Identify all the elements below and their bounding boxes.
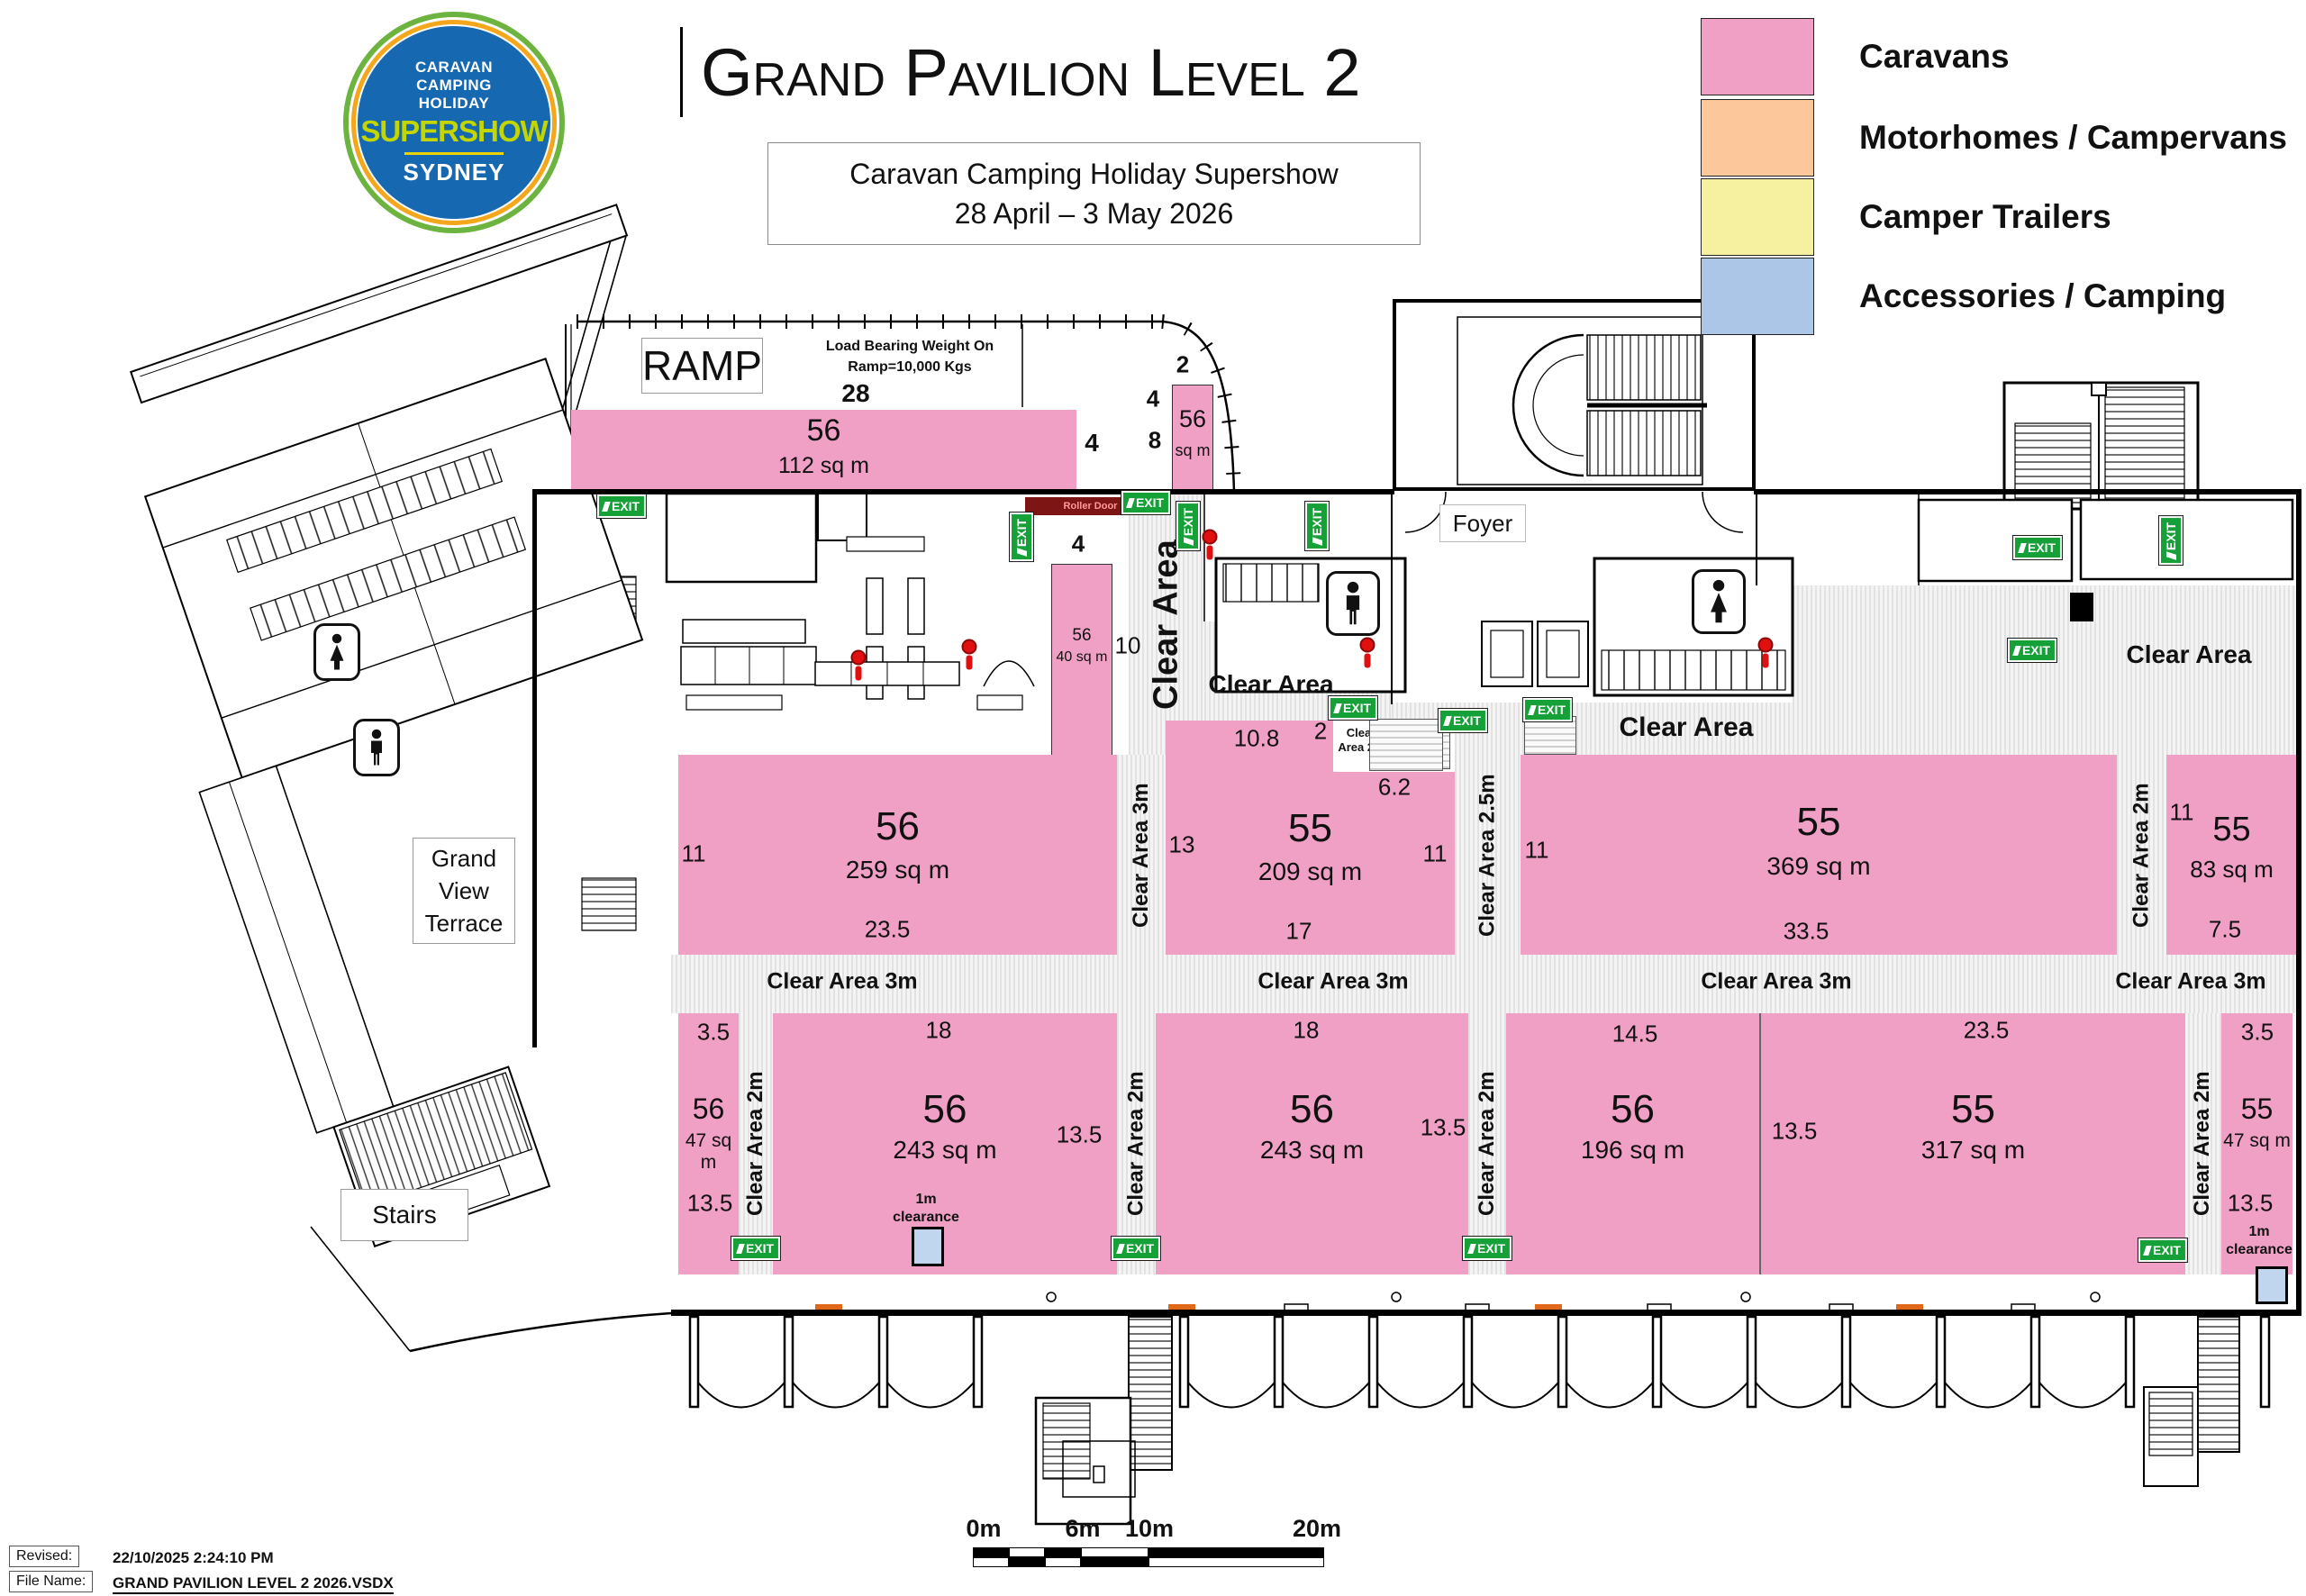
exit-sign: EXIT: [1176, 502, 1200, 550]
booth-area: 317 sq m: [1761, 1136, 2185, 1165]
wall-right: [2296, 489, 2301, 1316]
dim: 10.8: [1234, 725, 1280, 753]
legend-label-caravans: Caravans: [1859, 38, 2010, 76]
stairs-label: Stairs: [372, 1201, 437, 1229]
scale-cell: [1009, 1557, 1045, 1567]
clearance-square-right: [2256, 1266, 2288, 1304]
clear-area-3m-label-3: Clear Area 3m: [1701, 969, 1851, 995]
dim: 4: [1085, 429, 1099, 458]
exit-text: EXIT: [612, 499, 640, 513]
supershow-logo: CARAVAN CAMPING HOLIDAY SUPERSHOW SYDNEY: [343, 12, 565, 233]
dim: 13.5: [687, 1190, 733, 1218]
exit-sign: EXIT: [1329, 696, 1377, 720]
booth-56-243-b: 56 243 sq m: [1156, 1013, 1468, 1274]
dim: 13.5: [1421, 1114, 1466, 1142]
clear-area-label-3: Clear Area: [2126, 640, 2251, 669]
exit-sign: EXIT: [2013, 536, 2062, 559]
stairs-label-box: Stairs: [340, 1189, 468, 1241]
dim: 11: [1423, 840, 1448, 868]
clearance-1m: 1m: [2248, 1224, 2269, 1239]
exit-text: EXIT: [2022, 643, 2050, 657]
exit-sign: EXIT: [2008, 639, 2056, 662]
dim: 11: [2170, 799, 2194, 827]
top-right-rooms: [1919, 500, 2292, 621]
booth-56-corner: 56 sq m: [1172, 385, 1213, 494]
scale-cell: [1148, 1547, 1324, 1557]
clear-area-2m-text: Clear Area 2m: [2129, 784, 2155, 929]
dock-marker-4: [1896, 1304, 1923, 1310]
aisle-2m-mid-label: Clear Area 2m: [2117, 766, 2166, 946]
dim: 28: [841, 379, 869, 408]
legend-swatch-accessories: [1701, 258, 1814, 335]
fire-extinguisher-icon: [1758, 638, 1774, 653]
male-toilet-icon: [1326, 571, 1380, 636]
booth-area: 259 sq m: [678, 856, 1117, 884]
dim: 13: [1169, 831, 1195, 859]
clearance-label-right: 1m clearance: [2226, 1223, 2292, 1259]
page-title: Grand Pavilion Level 2: [680, 27, 1525, 117]
clear-area-2m-text: Clear Area 2m: [1475, 1072, 1500, 1217]
filename-value: GRAND PAVILION LEVEL 2 2026.VSDX: [113, 1574, 394, 1594]
dim: 7.5: [2209, 916, 2241, 944]
clear-area-2-5m-text: Clear Area 2.5m: [1475, 775, 1501, 938]
aisle-2-5m-label: Clear Area 2.5m: [1455, 739, 1521, 973]
booth-number: 56: [678, 804, 1117, 849]
booth-area: sq m: [1173, 441, 1212, 460]
terrace-female-toilet-icon: [313, 623, 360, 681]
logo-line1: CARAVAN: [415, 59, 493, 77]
logo-line2: CAMPING: [416, 77, 492, 95]
legend-label-camper-trailers: Camper Trailers: [1859, 198, 2111, 236]
exit-text: EXIT: [1014, 519, 1029, 547]
exit-text: EXIT: [1343, 701, 1371, 715]
scale-cell: [1009, 1547, 1045, 1557]
exit-sign: EXIT: [1010, 512, 1033, 561]
fire-extinguisher-icon: [962, 639, 977, 655]
legend-row-camper-trailers: Camper Trailers: [1701, 178, 2111, 256]
booth-area: 209 sq m: [1166, 857, 1455, 886]
event-subtitle-box: Caravan Camping Holiday Supershow 28 Apr…: [767, 142, 1421, 245]
legend-label-accessories: Accessories / Camping: [1859, 277, 2226, 315]
booth-number: 56: [571, 413, 1076, 449]
exit-sign: EXIT: [1305, 502, 1329, 550]
dim: 23.5: [865, 916, 911, 944]
foyer-label-box: Foyer: [1439, 504, 1526, 542]
booth-56-40: 56 40 sq m: [1051, 564, 1112, 765]
dim: 11: [682, 840, 706, 868]
dim: 33.5: [1784, 918, 1829, 946]
terrace-line3: Terrace: [425, 907, 504, 939]
legend-row-caravans: Caravans: [1701, 18, 2010, 95]
bottom-stairwell-left: [1036, 1317, 1172, 1524]
booth-area: 40 sq m: [1052, 649, 1112, 666]
exit-text: EXIT: [1126, 1241, 1154, 1256]
scale-cell: [1081, 1557, 1148, 1567]
revised-label-box: Revised:: [9, 1546, 79, 1567]
booth-56-47-left: 56 47 sq m: [678, 1013, 739, 1274]
booth-number: 55: [2221, 1093, 2292, 1126]
exit-sign: EXIT: [731, 1237, 780, 1260]
booth-area: 47 sq m: [678, 1130, 739, 1174]
foyer-label: Foyer: [1453, 510, 1512, 538]
wall-top-left: [532, 489, 1394, 494]
exit-sign: EXIT: [1523, 698, 1572, 721]
dim: 6.2: [1378, 774, 1411, 802]
terrace-line2: View: [439, 875, 489, 907]
exit-sign: EXIT: [1121, 491, 1170, 514]
exit-text: EXIT: [1477, 1241, 1505, 1256]
exit-text: EXIT: [1453, 713, 1481, 728]
legend-label-motorhomes: Motorhomes / Campervans: [1859, 119, 2287, 157]
fire-extinguisher-icon: [851, 650, 867, 666]
dim: 3.5: [697, 1019, 730, 1047]
aisle-2m-b2-label: Clear Area 2m: [1117, 1027, 1156, 1261]
exit-text: EXIT: [1310, 508, 1324, 536]
aisle-2m-b1-label: Clear Area 2m: [739, 1027, 773, 1261]
exit-sign: EXIT: [2159, 516, 2183, 565]
exit-text: EXIT: [1136, 495, 1164, 510]
dock-marker-1: [815, 1304, 842, 1310]
load-bearing-line2: Ramp=10,000 Kgs: [848, 359, 971, 376]
clear-area-2m-text: Clear Area 2m: [1124, 1072, 1149, 1217]
exit-text: EXIT: [2153, 1243, 2181, 1257]
booth-56-112: 56 112 sq m: [571, 410, 1076, 492]
clear-area-2m-text: Clear Area 2m: [2190, 1072, 2215, 1217]
dim: 18: [1294, 1017, 1320, 1045]
clear-area-3m-label-1: Clear Area 3m: [767, 969, 917, 995]
wall-top-right: [1754, 489, 2301, 494]
scale-cell: [1148, 1557, 1324, 1567]
dim: 4: [1147, 385, 1159, 413]
booth-number: 55: [1761, 1087, 2185, 1132]
exit-sign: EXIT: [1439, 709, 1487, 732]
exit-text: EXIT: [746, 1241, 774, 1256]
exit-sign: EXIT: [1463, 1237, 1512, 1260]
terrace-label-box: Grand View Terrace: [413, 838, 515, 944]
exit-text: EXIT: [1181, 508, 1195, 536]
clear-area-label-1: Clear Area: [1208, 670, 1333, 699]
legend-row-accessories: Accessories / Camping: [1701, 258, 2226, 335]
scale-0m: 0m: [966, 1515, 1001, 1543]
dim: 2: [1176, 351, 1189, 379]
dim: 13.5: [2228, 1190, 2274, 1218]
legend-swatch-caravans: [1701, 18, 1814, 95]
dim: 18: [926, 1017, 952, 1045]
dim: 23.5: [1964, 1017, 2010, 1045]
load-bearing-line1: Load Bearing Weight On: [826, 339, 994, 355]
booth-number: 56: [1506, 1087, 1759, 1132]
aisle-2m-b4-label: Clear Area 2m: [2183, 1027, 2221, 1261]
female-toilet-icon: [1692, 569, 1746, 634]
legend-swatch-camper-trailers: [1701, 178, 1814, 256]
exit-sign: EXIT: [2138, 1238, 2187, 1262]
dim: 3.5: [2241, 1019, 2274, 1047]
terrace-line1: Grand: [431, 842, 496, 875]
logo-core: CARAVAN CAMPING HOLIDAY SUPERSHOW SYDNEY: [358, 26, 550, 219]
clear-area-text: Clear Area: [1148, 540, 1186, 711]
fire-extinguisher-icon: [1360, 638, 1375, 653]
clear-area-3m-label-4: Clear Area 3m: [2115, 969, 2265, 995]
clearance-square-left: [912, 1227, 944, 1266]
booth-area: 196 sq m: [1506, 1136, 1759, 1165]
event-name: Caravan Camping Holiday Supershow: [849, 154, 1339, 194]
booth-number: 56: [678, 1093, 739, 1126]
scale-6m: 6m: [1065, 1515, 1100, 1543]
escalator-left: [1369, 719, 1443, 771]
exit-text: EXIT: [2028, 540, 2056, 555]
booth-area: 83 sq m: [2166, 856, 2297, 884]
booth-number: 56: [1173, 405, 1212, 433]
booth-area: 112 sq m: [571, 453, 1076, 479]
ramp-label: RAMP: [642, 341, 762, 390]
scale-cell: [973, 1557, 1009, 1567]
lift-shafts: [1482, 621, 1588, 686]
clearance-label-left: 1m clearance: [893, 1191, 959, 1227]
fire-extinguisher-icon: [1203, 530, 1218, 545]
booth-number: 55: [1166, 806, 1455, 851]
revised-value: 22/10/2025 2:24:10 PM: [113, 1549, 274, 1567]
booth-area: 47 sq m: [2221, 1130, 2292, 1152]
ramp-label-box: RAMP: [641, 338, 763, 394]
booth-number: 56: [1052, 626, 1112, 646]
dim: 13.5: [1057, 1121, 1103, 1149]
clearance-word: clearance: [893, 1210, 959, 1225]
scale-cell: [1045, 1547, 1081, 1557]
floor-plan-page: CARAVAN CAMPING HOLIDAY SUPERSHOW SYDNEY…: [0, 0, 2306, 1596]
exit-text: EXIT: [2164, 522, 2178, 550]
dock-marker-2: [1168, 1304, 1195, 1310]
logo-city: SYDNEY: [404, 159, 505, 186]
roller-door-label: Roller Door: [1064, 501, 1118, 512]
booth-56-196: 56 196 sq m: [1506, 1013, 1759, 1274]
logo-divider: [404, 152, 504, 155]
aisle-2m-b3-label: Clear Area 2m: [1468, 1027, 1506, 1261]
exit-sign: EXIT: [1112, 1237, 1160, 1260]
clear-area-3m-label-2: Clear Area 3m: [1257, 969, 1408, 995]
revised-label: Revised:: [16, 1548, 72, 1564]
dim: 14.5: [1612, 1020, 1658, 1048]
exit-text: EXIT: [1538, 703, 1566, 717]
filename-label: File Name:: [16, 1573, 86, 1589]
exit-sign: EXIT: [597, 494, 646, 518]
foyer-stairwell: [1394, 301, 1754, 532]
dim: 8: [1148, 427, 1161, 455]
wall-bottom: [671, 1310, 2301, 1316]
dock-marker-3: [1535, 1304, 1562, 1310]
bottom-stairwell-right: [2144, 1317, 2239, 1486]
booth-55-317: 55 317 sq m: [1759, 1013, 2185, 1274]
scale-20m: 20m: [1293, 1515, 1341, 1543]
clearance-word: clearance: [2226, 1242, 2292, 1257]
escalator-right: [1524, 716, 1576, 755]
dim: 11: [1525, 837, 1549, 865]
legend-row-motorhomes: Motorhomes / Campervans: [1701, 99, 2287, 177]
scale-cell: [973, 1547, 1009, 1557]
scale-cell: [1045, 1557, 1081, 1567]
scale-cell: [1081, 1547, 1148, 1557]
logo-line3: HOLIDAY: [419, 95, 489, 113]
wall-left: [532, 489, 537, 1047]
booth-area: 369 sq m: [1521, 852, 2117, 881]
filename-label-box: File Name:: [9, 1571, 93, 1592]
terrace-male-toilet-icon: [353, 719, 400, 776]
dim: 17: [1286, 918, 1312, 946]
booth-number: 55: [1521, 800, 2117, 845]
clear-area-3m-text: Clear Area 3m: [1129, 784, 1154, 929]
aisle-3m-1-label: Clear Area 3m: [1117, 766, 1166, 946]
event-dates: 28 April – 3 May 2026: [955, 194, 1234, 233]
dim: 2: [1314, 718, 1327, 746]
dim: 4: [1072, 530, 1085, 558]
legend-swatch-motorhomes: [1701, 99, 1814, 177]
clear-area-label-2: Clear Area: [1620, 712, 1754, 743]
dim: 13.5: [1772, 1118, 1818, 1146]
clearance-1m: 1m: [915, 1192, 936, 1207]
clear-area-2m-text: Clear Area 2m: [743, 1072, 768, 1217]
scale-10m: 10m: [1125, 1515, 1174, 1543]
logo-brand: SUPERSHOW: [360, 114, 547, 149]
